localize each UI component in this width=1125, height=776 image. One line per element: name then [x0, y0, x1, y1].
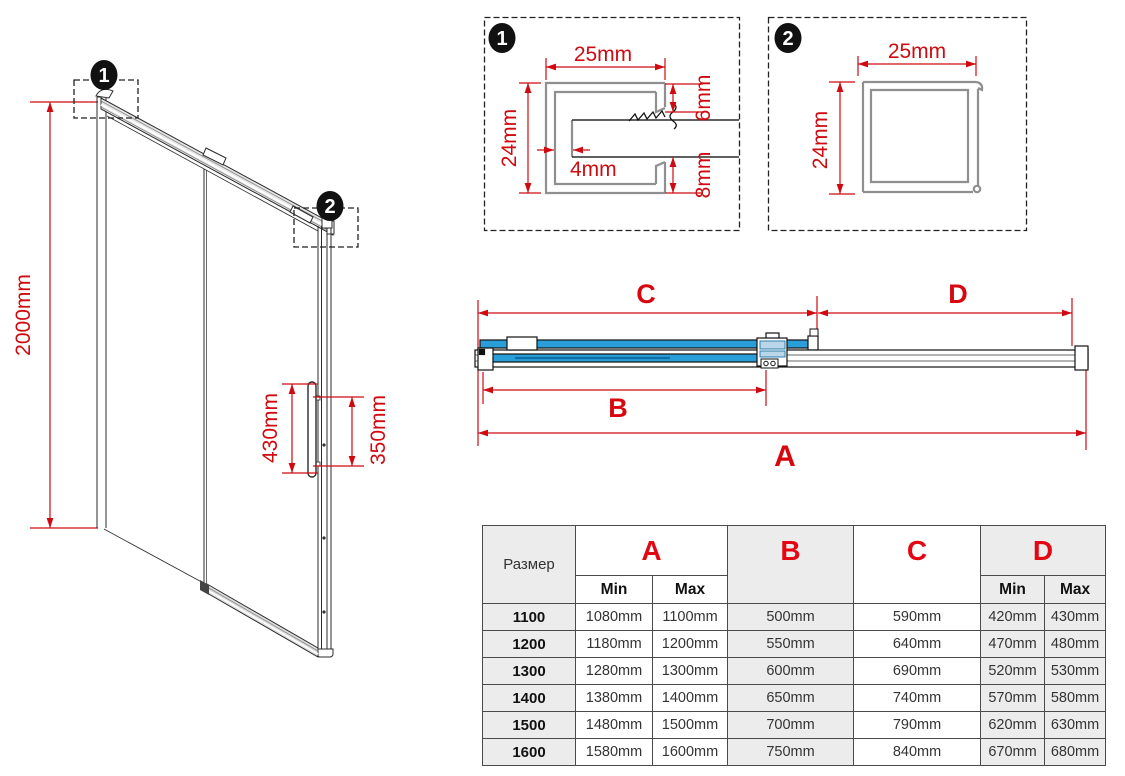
- table-row: 1100 1080mm 1100mm 500mm 590mm 420mm 430…: [483, 604, 1106, 631]
- table-cell: 790mm: [854, 712, 981, 739]
- detail-2-number: 2: [782, 28, 793, 50]
- detail-2-height-label: 24mm: [809, 111, 832, 169]
- size-header-cell: Размер: [483, 526, 576, 604]
- rail-end-cap: [1075, 346, 1088, 370]
- table-cell: 1480mm: [576, 712, 653, 739]
- table-cell: 600mm: [728, 658, 854, 685]
- table-header-row: Размер A B C D: [483, 526, 1106, 576]
- detail-2-profile-section: 25mm 24mm 2: [767, 16, 1028, 232]
- size-cell: 1200: [483, 631, 576, 658]
- table-cell: 1580mm: [576, 739, 653, 766]
- table-cell: 430mm: [1045, 604, 1106, 631]
- size-cell: 1400: [483, 685, 576, 712]
- handle-dim-label: 430mm: [259, 393, 282, 463]
- table-cell: 740mm: [854, 685, 981, 712]
- a-max-header: Max: [653, 576, 728, 604]
- table-cell: 620mm: [981, 712, 1045, 739]
- detail-1-bottomlip-label: 8mm: [692, 152, 715, 199]
- table-cell: 580mm: [1045, 685, 1106, 712]
- table-cell: 1200mm: [653, 631, 728, 658]
- table-cell: 500mm: [728, 604, 854, 631]
- size-cell: 1100: [483, 604, 576, 631]
- table-cell: 1100mm: [653, 604, 728, 631]
- dim-label-c: C: [636, 279, 656, 309]
- detail-2-dim-lines: [829, 56, 976, 194]
- dimension-350mm: [313, 397, 364, 466]
- table-cell: 650mm: [728, 685, 854, 712]
- size-table: Размер A B C D Min Max Min Max 1100 1080…: [482, 525, 1106, 766]
- table-cell: 1380mm: [576, 685, 653, 712]
- top-view-rail-plan: C D B A: [470, 278, 1105, 473]
- col-header-b: B: [728, 526, 854, 604]
- detail-1-wall-label: 4mm: [570, 158, 617, 181]
- table-cell: 1300mm: [653, 658, 728, 685]
- size-cell: 1300: [483, 658, 576, 685]
- table-cell: 1500mm: [653, 712, 728, 739]
- handle-hole-dim-label: 350mm: [367, 395, 390, 465]
- table-cell: 1400mm: [653, 685, 728, 712]
- detail-1-height-label: 24mm: [498, 109, 521, 167]
- extension-lines: [478, 296, 1086, 450]
- table-cell: 570mm: [981, 685, 1045, 712]
- table-cell: 630mm: [1045, 712, 1106, 739]
- col-header-a: A: [576, 526, 728, 576]
- top-clamp: [507, 337, 537, 350]
- table-cell: 470mm: [981, 631, 1045, 658]
- detail-1-number: 1: [496, 28, 507, 50]
- table-row: 1200 1180mm 1200mm 550mm 640mm 470mm 480…: [483, 631, 1106, 658]
- table-cell: 590mm: [854, 604, 981, 631]
- table-cell: 550mm: [728, 631, 854, 658]
- table-cell: 840mm: [854, 739, 981, 766]
- glass-panel-lines: [572, 120, 739, 157]
- table-row: 1300 1280mm 1300mm 600mm 690mm 520mm 530…: [483, 658, 1106, 685]
- roller-carriage: [757, 333, 787, 368]
- table-cell: 480mm: [1045, 631, 1106, 658]
- d-max-header: Max: [1045, 576, 1106, 604]
- table-cell: 1080mm: [576, 604, 653, 631]
- table-cell: 530mm: [1045, 658, 1106, 685]
- table-row: 1500 1480mm 1500mm 700mm 790mm 620mm 630…: [483, 712, 1106, 739]
- detail-1-toplip-label: 6mm: [692, 75, 715, 122]
- shower-door-spec-sheet: 2000mm: [0, 0, 1125, 776]
- table-cell: 1180mm: [576, 631, 653, 658]
- rail-assembly: [475, 329, 1088, 370]
- table-cell: 420mm: [981, 604, 1045, 631]
- table-cell: 700mm: [728, 712, 854, 739]
- dim-lines-abcd: [478, 313, 1086, 433]
- detail-1-width-label: 25mm: [574, 43, 632, 66]
- size-cell: 1600: [483, 739, 576, 766]
- detail-1-profile-section: 25mm 24mm 6mm 8mm 4mm 1: [483, 16, 741, 232]
- size-cell: 1500: [483, 712, 576, 739]
- dim-label-b: B: [608, 393, 628, 423]
- d-min-header: Min: [981, 576, 1045, 604]
- profile-2-outline: [863, 82, 982, 192]
- door-structure: [96, 89, 334, 657]
- table-row: 1600 1580mm 1600mm 750mm 840mm 670mm 680…: [483, 739, 1106, 766]
- table-cell: 640mm: [854, 631, 981, 658]
- table-cell: 750mm: [728, 739, 854, 766]
- table-cell: 1280mm: [576, 658, 653, 685]
- table-cell: 680mm: [1045, 739, 1106, 766]
- gasket-seal: [629, 103, 676, 129]
- detail-2-width-label: 25mm: [888, 40, 946, 63]
- table-row: 1400 1380mm 1400mm 650mm 740mm 570mm 580…: [483, 685, 1106, 712]
- height-dim-label: 2000mm: [12, 274, 35, 356]
- isometric-door-drawing: 2000mm: [0, 0, 460, 700]
- table-cell: 1600mm: [653, 739, 728, 766]
- table-cell: 520mm: [981, 658, 1045, 685]
- dimension-2000mm: [30, 102, 98, 528]
- col-header-d: D: [981, 526, 1106, 576]
- callout-1-number: 1: [98, 65, 109, 87]
- dim-label-a: A: [774, 440, 796, 473]
- dim-label-d: D: [948, 279, 968, 309]
- table-cell: 670mm: [981, 739, 1045, 766]
- callout-2-number: 2: [324, 196, 335, 218]
- col-header-c: C: [854, 526, 981, 604]
- table-cell: 690mm: [854, 658, 981, 685]
- a-min-header: Min: [576, 576, 653, 604]
